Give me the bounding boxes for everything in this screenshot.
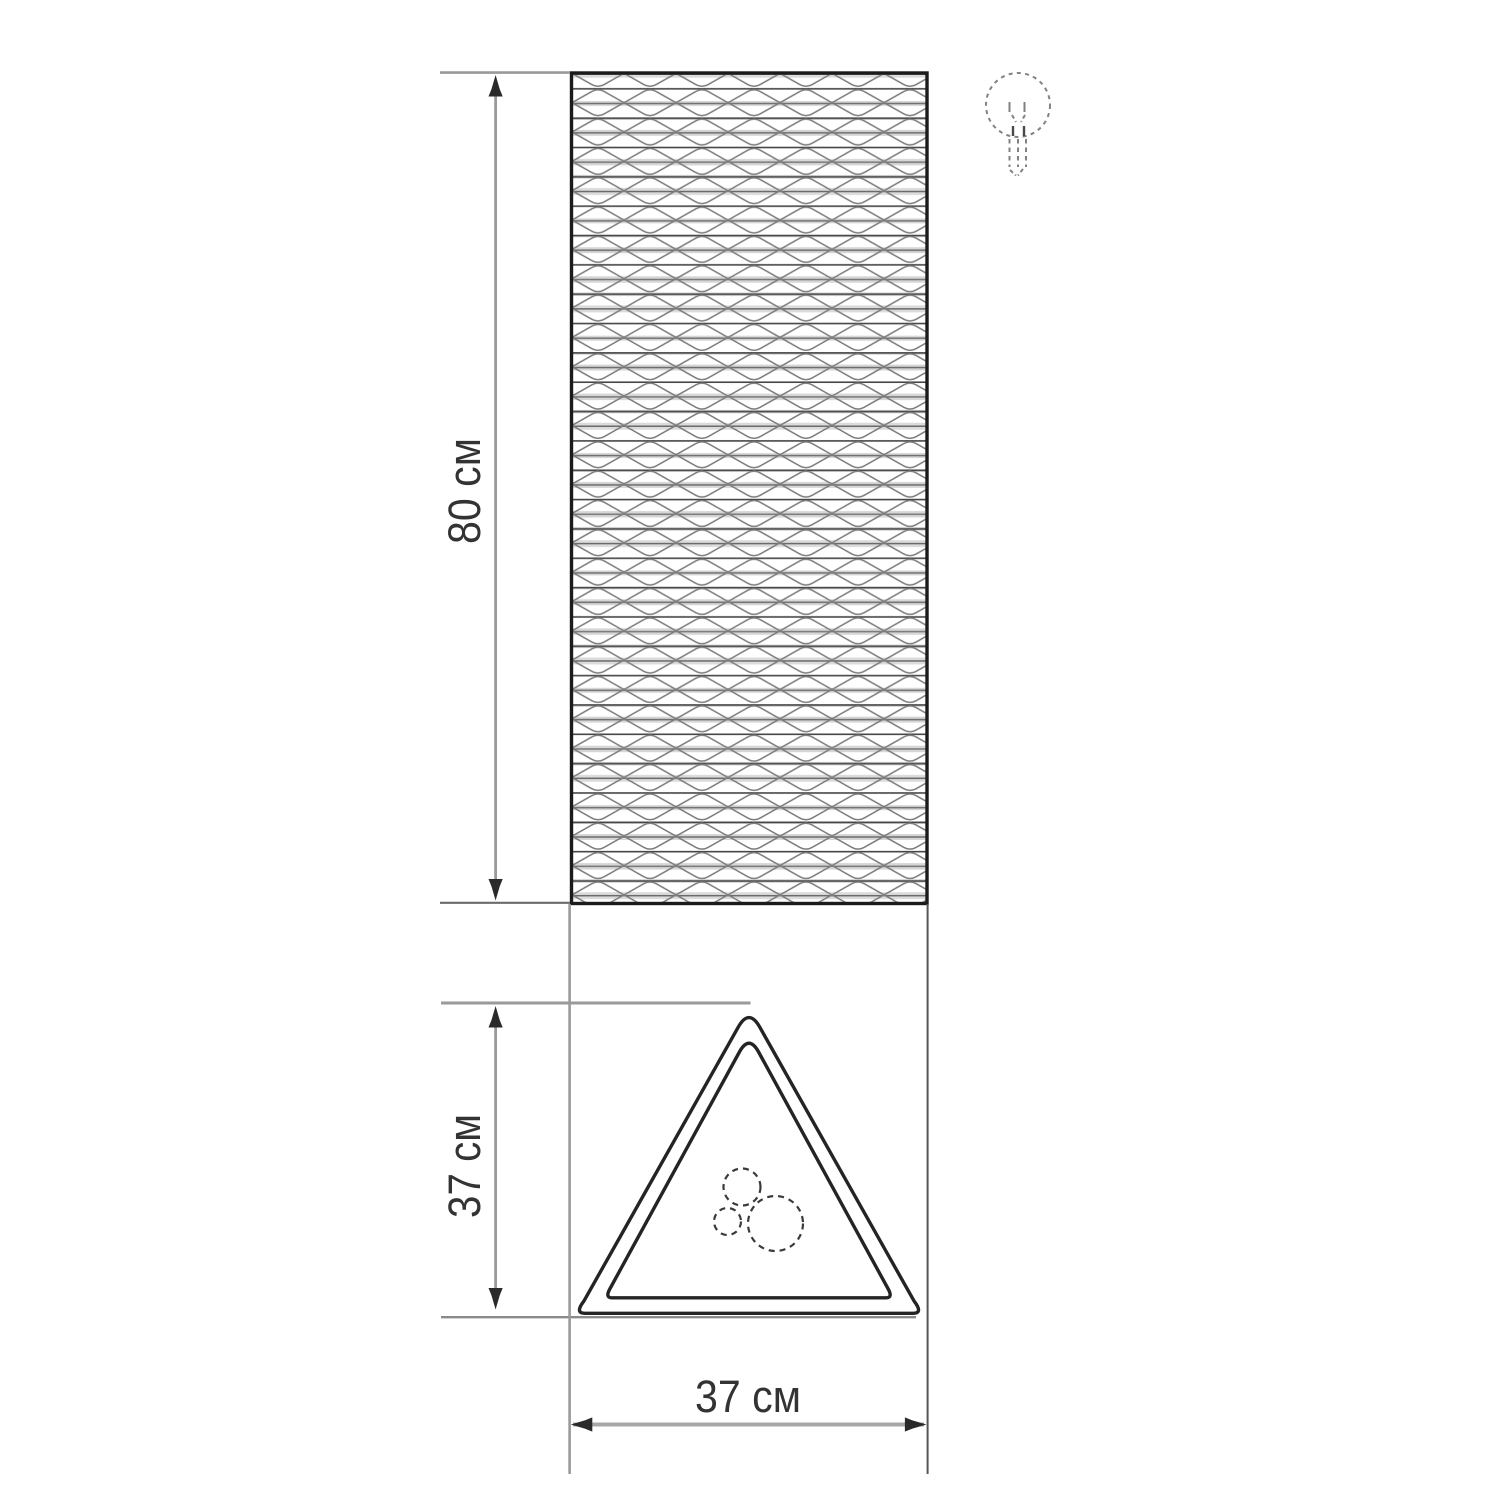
svg-text:37 см: 37 см xyxy=(439,1114,490,1218)
svg-text:37 см: 37 см xyxy=(695,1371,801,1422)
svg-text:80 см: 80 см xyxy=(439,438,490,544)
